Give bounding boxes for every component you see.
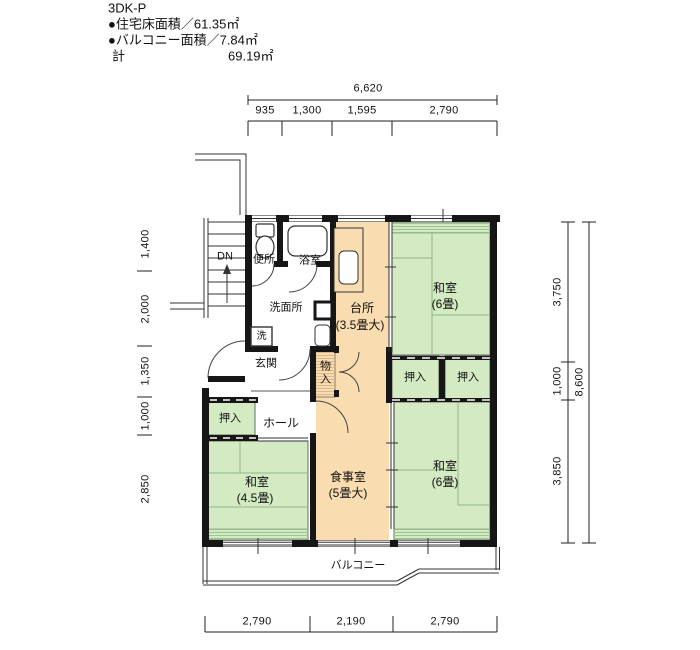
tatami-ne-window-band xyxy=(392,222,490,233)
dim-top-3: 1,595 xyxy=(347,106,376,117)
tatami-ne-size-label: (6畳) xyxy=(432,298,459,310)
dim-left-1: 1,400 xyxy=(141,229,152,258)
toilet-label: 便所 xyxy=(253,255,275,266)
dim-top-1: 935 xyxy=(255,106,274,117)
total-label: 計 xyxy=(112,50,125,63)
entrance-door-arc xyxy=(208,341,245,378)
tatami-ne-name-label: 和室 xyxy=(433,282,457,294)
bath-door-arc xyxy=(289,264,317,292)
pipe-shaft xyxy=(315,302,332,319)
closet-e1-label: 押入 xyxy=(404,373,426,384)
dim-left-4: 1,000 xyxy=(141,401,152,430)
stairs-down-label: DN xyxy=(217,252,233,263)
dining-floor xyxy=(316,397,389,540)
laundry-label: 洗 xyxy=(257,332,267,342)
dim-top-4: 2,790 xyxy=(429,106,458,117)
dim-right-1: 3,750 xyxy=(553,277,564,306)
stairs xyxy=(170,154,246,318)
tatami-se-window-band xyxy=(394,529,490,540)
dim-left-2: 2,000 xyxy=(141,294,152,323)
closet-e2-label: 押入 xyxy=(457,373,479,384)
plan-type-title: 3DK-P xyxy=(108,2,146,15)
floor-plan-page: 3DK-P ●住宅床面積／61.35㎡ ●バルコニー面積／7.84㎡ 計 69.… xyxy=(0,0,700,650)
floor-area-line: ●住宅床面積／61.35㎡ xyxy=(108,18,239,31)
dining-size-label: (5畳大) xyxy=(329,487,368,499)
kitchen-name-label: 台所 xyxy=(350,302,374,314)
closet-sw-label: 押入 xyxy=(219,414,241,425)
balcony-area-line: ●バルコニー面積／7.84㎡ xyxy=(108,34,258,47)
dim-right-overall: 8,600 xyxy=(575,367,586,396)
dim-bottom-1: 2,790 xyxy=(242,617,271,628)
dim-left-5: 2,850 xyxy=(141,474,152,503)
toilet-door-arc xyxy=(252,264,274,286)
balcony-label: バルコニー xyxy=(331,561,386,572)
tatami-se-size-label: (6畳) xyxy=(432,476,459,488)
bath-label: 浴室 xyxy=(299,256,321,267)
dim-top-overall: 6,620 xyxy=(353,84,382,95)
toilet-tank xyxy=(256,224,274,237)
wash-basin xyxy=(315,325,330,346)
dim-right-2: 1,000 xyxy=(553,366,564,395)
entrance-label: 玄関 xyxy=(255,359,277,370)
washroom-door-arc xyxy=(279,349,310,380)
dim-top-2: 1,300 xyxy=(292,106,321,117)
stairs-arrow-head xyxy=(223,264,231,274)
dim-bottom-3: 2,790 xyxy=(430,617,459,628)
dim-bottom-2: 2,190 xyxy=(336,617,365,628)
storage-label: 物入 xyxy=(319,360,330,386)
entrance-door-leaf xyxy=(208,376,245,382)
tatami-se-name-label: 和室 xyxy=(433,460,457,472)
dim-left-3: 1,350 xyxy=(141,356,152,385)
tatami-sw-name-label: 和室 xyxy=(245,476,269,488)
kitchen-sink xyxy=(339,251,358,284)
dim-right-3: 3,850 xyxy=(553,456,564,485)
dining-name-label: 食事室 xyxy=(330,471,366,483)
tatami-sw-size-label: (4.5畳) xyxy=(237,492,274,504)
bathtub xyxy=(288,226,327,256)
kitchen-size-label: (3.5畳大) xyxy=(336,319,385,331)
total-value: 69.19㎡ xyxy=(228,50,274,63)
washroom-label: 洗面所 xyxy=(270,303,303,314)
hall-label: ホール xyxy=(263,417,299,429)
